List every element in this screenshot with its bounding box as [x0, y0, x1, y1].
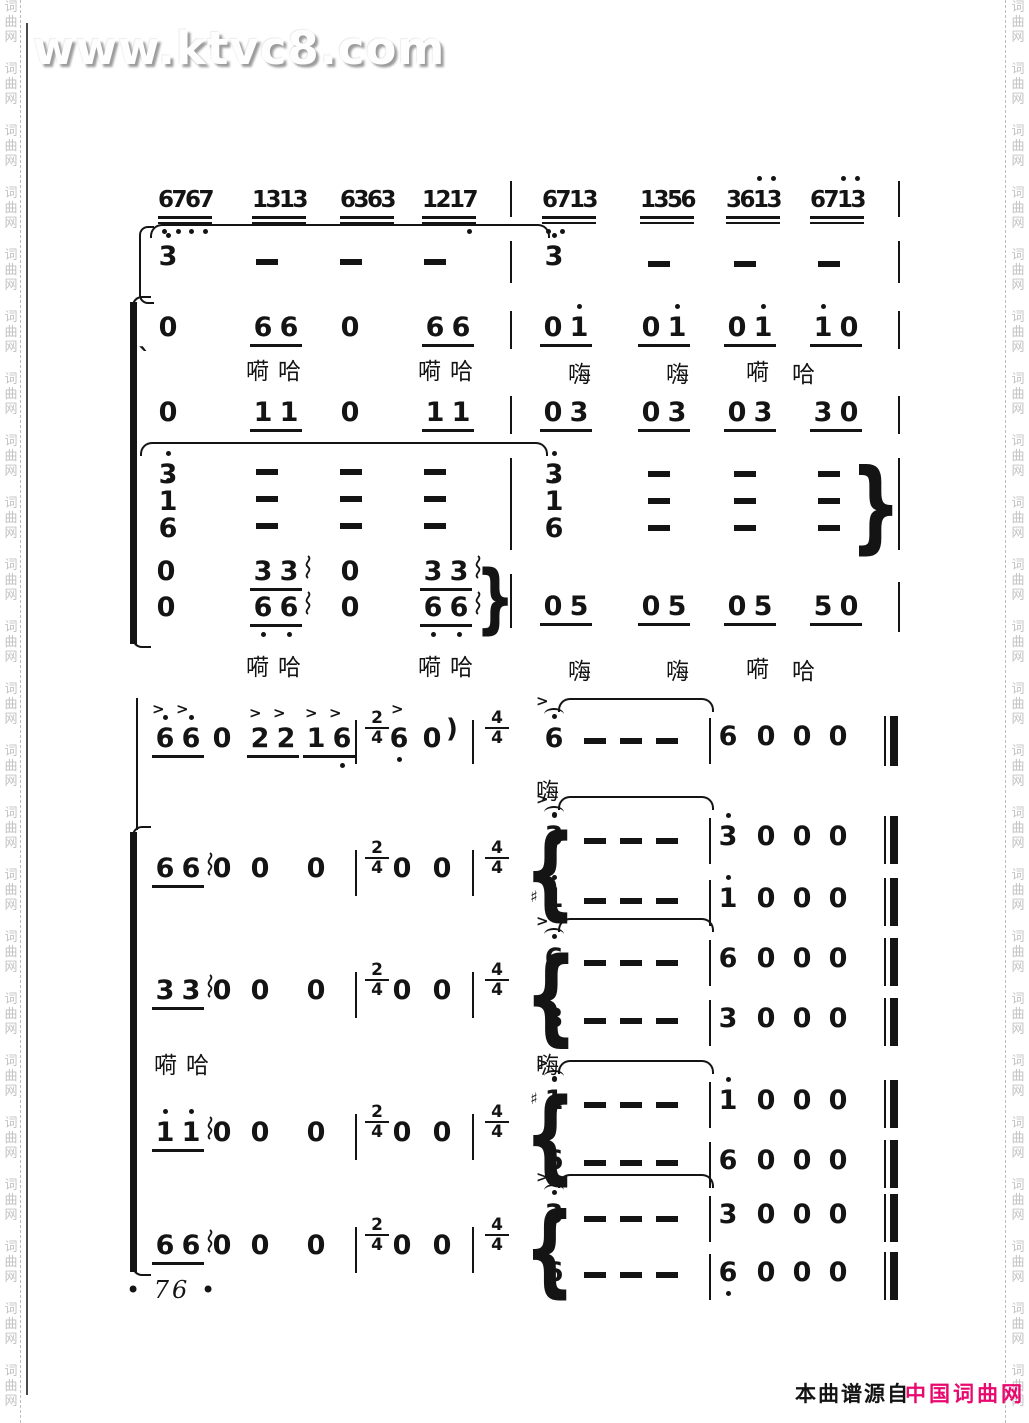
time-sig-numerator: 2: [363, 1217, 391, 1233]
sheet-music-page: 词曲网词曲网词曲网词曲网词曲网词曲网词曲网词曲网词曲网词曲网词曲网词曲网词曲网词…: [0, 0, 1029, 1423]
voice-brace: }: [850, 456, 901, 556]
time-sig-denominator: 4: [363, 730, 391, 746]
note-digit: 3: [446, 557, 472, 587]
note-digit: 5: [750, 592, 776, 622]
beam-underline: [542, 216, 596, 219]
sharp-sign: ♯: [530, 887, 538, 906]
margin-text-group: 词曲网: [2, 62, 20, 107]
jianpu-note: 0: [212, 976, 232, 1006]
beam-underline: [340, 216, 394, 219]
jianpu-note: 1: [718, 884, 738, 914]
note-digit: 0: [540, 313, 566, 343]
accent-mark: >: [305, 706, 318, 720]
beam-underline: [152, 1007, 204, 1010]
margin-text-group: 词曲网: [1009, 62, 1027, 107]
note-digit: 0: [724, 592, 750, 622]
sustain-dash: [648, 525, 670, 531]
time-signature: 24: [363, 840, 391, 876]
note-digit: 0: [756, 722, 776, 752]
jianpu-note: 0: [340, 398, 360, 428]
sustain-dash: [620, 1216, 642, 1222]
footer-brand-link[interactable]: 中国词曲网: [905, 1378, 1025, 1408]
note-digit: 6: [810, 185, 824, 215]
note-digit: 3: [250, 557, 276, 587]
beam-underline: [250, 344, 302, 347]
note-digit: 3: [178, 976, 204, 1006]
right-margin-watermark-text: 词曲网词曲网词曲网词曲网词曲网词曲网词曲网词曲网词曲网词曲网词曲网词曲网词曲网词…: [1009, 0, 1027, 1423]
lyric-syllable: 嗬哈: [154, 1046, 218, 1080]
margin-text-group: 词曲网: [2, 310, 20, 355]
jianpu-note: 0: [340, 557, 360, 587]
margin-text-group: 词曲网: [1009, 992, 1027, 1037]
note-digit: 0: [250, 1118, 270, 1148]
jianpu-note: 3: [158, 242, 178, 272]
jianpu-note: 0: [756, 722, 776, 752]
margin-text-group: 词曲网: [1009, 1240, 1027, 1285]
left-margin-dashed-line: [20, 0, 21, 1423]
note-digit: 3: [726, 185, 740, 215]
jianpu-note: 0: [306, 1231, 326, 1261]
note-digit: 6: [329, 724, 355, 754]
note-digit: 0: [836, 313, 862, 343]
note-digit: 0: [836, 592, 862, 622]
note-digit: 6: [158, 514, 178, 544]
barline: [898, 582, 900, 632]
accent-mark: >: [152, 702, 165, 716]
slur-hook: [132, 1262, 151, 1276]
margin-text-group: 词曲网: [1009, 620, 1027, 665]
margin-text-group: 词曲网: [2, 1054, 20, 1099]
jianpu-note: 0: [306, 1118, 326, 1148]
lyric-syllable: 嗨: [568, 652, 600, 686]
sustain-dash: [648, 471, 670, 477]
sustain-dash: [584, 1272, 606, 1278]
sustain-dash: [584, 1018, 606, 1024]
sustain-dash: [584, 838, 606, 844]
jianpu-note: 0: [422, 724, 442, 754]
beam-underline: [158, 216, 212, 219]
jianpu-note: 0: [156, 557, 176, 587]
note-digit: 0: [828, 1146, 848, 1176]
note-digit: 7: [199, 185, 213, 215]
system-bracket-line: [130, 832, 137, 1272]
jianpu-note: 6: [718, 1146, 738, 1176]
note-digit: 1: [279, 185, 293, 215]
jianpu-note: 0: [432, 976, 452, 1006]
note-digit: 3: [664, 398, 690, 428]
note-digit: 3: [152, 976, 178, 1006]
accent-mark: >: [329, 706, 342, 720]
slur-arc: [558, 1060, 714, 1074]
beam-underline: [422, 429, 474, 432]
accent-mark: >: [536, 1170, 549, 1184]
barline: [898, 458, 900, 550]
lyric-syllable: 嗬: [746, 650, 778, 684]
site-watermark: www.ktvc8.com: [33, 22, 445, 75]
note-digit: 0: [306, 1118, 326, 1148]
note-digit: 3: [544, 822, 564, 852]
page-number: • 76 •: [126, 1276, 218, 1304]
accent-mark: >: [391, 702, 404, 716]
note-digit: 3: [381, 185, 395, 215]
note-digit: 0: [340, 593, 360, 623]
final-bar-thin: [884, 1194, 886, 1242]
time-sig-denominator: 4: [363, 982, 391, 998]
margin-text-group: 词曲网: [2, 682, 20, 727]
sustain-dash: [620, 838, 642, 844]
slur-arc: [558, 918, 714, 932]
octave-dot-above: [189, 1109, 194, 1114]
margin-text-group: 词曲网: [1009, 124, 1027, 169]
beam-underline: [152, 1262, 204, 1265]
note-digit: 6: [718, 722, 738, 752]
note-digit: 0: [432, 1118, 452, 1148]
slur-hook: [132, 634, 151, 648]
jianpu-note: 6: [544, 724, 564, 754]
sustain-dash: [584, 960, 606, 966]
barline: [510, 396, 512, 434]
margin-text-group: 词曲网: [2, 248, 20, 293]
accent-mark: >: [536, 1056, 549, 1070]
beam-underline: [540, 344, 592, 347]
note-digit: 0: [306, 854, 326, 884]
beam-underline: [152, 885, 204, 888]
beam-underline: [540, 623, 592, 626]
sustain-dash: [620, 1160, 642, 1166]
note-digit: 7: [824, 185, 838, 215]
barline: [472, 720, 474, 764]
sustain-dash: [584, 1160, 606, 1166]
margin-text-group: 词曲网: [2, 992, 20, 1037]
margin-text-group: 词曲网: [2, 930, 20, 975]
jianpu-note: 11: [422, 398, 474, 428]
footer-source-label: 本曲谱源自: [795, 1378, 910, 1408]
beam-underline: [250, 588, 302, 591]
octave-dot-above: [821, 304, 826, 309]
note-digit: 6: [276, 593, 302, 623]
jianpu-note: 0: [756, 1146, 776, 1176]
sustain-dash: [818, 261, 840, 267]
jianpu-note: 05: [540, 592, 592, 622]
note-digit: 0: [638, 313, 664, 343]
jianpu-note: 3: [544, 822, 564, 852]
octave-dot-above: [552, 875, 557, 880]
octave-dot-below: [726, 1291, 731, 1296]
jianpu-note: 3613: [726, 185, 780, 215]
note-digit: 0: [156, 593, 176, 623]
jianpu-note: 0: [792, 1146, 812, 1176]
jianpu-note: 0: [250, 854, 270, 884]
sustain-dash: [620, 1018, 642, 1024]
jianpu-note: 6: [389, 724, 409, 754]
final-bar-thin: [884, 1080, 886, 1128]
slur-arc: [558, 796, 714, 810]
note-digit: 0: [756, 1086, 776, 1116]
time-signature: 24: [363, 1104, 391, 1140]
fermata-dot: [552, 1190, 557, 1195]
note-digit: 6: [340, 185, 354, 215]
octave-dot-above: [552, 233, 557, 238]
note-digit: 1: [303, 724, 329, 754]
time-sig-numerator: 2: [363, 710, 391, 726]
octave-dot-above: [726, 875, 731, 880]
accent-mark: >: [273, 706, 286, 720]
margin-text-group: 词曲网: [2, 620, 20, 665]
jianpu-note: 0: [212, 854, 232, 884]
octave-dot-above: [189, 715, 194, 720]
sustain-dash: [818, 525, 840, 531]
barline: [510, 574, 512, 628]
note-digit: 2: [273, 724, 299, 754]
note-digit: 1: [449, 185, 463, 215]
note-digit: 6: [178, 724, 204, 754]
barline: [472, 1114, 474, 1160]
note-digit: 1: [837, 185, 851, 215]
barline: [898, 241, 900, 283]
sustain-dash: [424, 496, 446, 502]
note-digit: 3: [544, 1200, 564, 1230]
note-digit: 3: [266, 185, 280, 215]
note-digit: 0: [792, 722, 812, 752]
note-digit: 3: [810, 398, 836, 428]
note-digit: 1: [664, 313, 690, 343]
jianpu-note: 0: [392, 1231, 412, 1261]
sustain-dash: [656, 1272, 678, 1278]
sustain-dash: [818, 471, 840, 477]
slur-arc: [150, 224, 550, 238]
time-sig-denominator: 4: [483, 860, 511, 876]
octave-dot-below: [287, 632, 292, 637]
final-bar-thin: [884, 878, 886, 926]
accent-mark: >: [536, 914, 549, 928]
note-digit: 6: [389, 724, 409, 754]
note-digit: 0: [792, 1086, 812, 1116]
jianpu-note: 0: [792, 722, 812, 752]
note-digit: 0: [638, 398, 664, 428]
margin-text-group: 词曲网: [1009, 186, 1027, 231]
octave-dot-below: [340, 763, 345, 768]
sustain-dash: [584, 1216, 606, 1222]
sustain-dash: [656, 1102, 678, 1108]
jianpu-note: 66: [250, 313, 302, 343]
jianpu-note: 03: [638, 398, 690, 428]
barline: [510, 181, 512, 217]
time-sig-numerator: 2: [363, 840, 391, 856]
sustain-dash: [656, 1160, 678, 1166]
octave-dot-above: [675, 304, 680, 309]
final-barline: [884, 1252, 898, 1300]
note-digit: 6: [152, 1231, 178, 1261]
note-digit: 6: [185, 185, 199, 215]
jianpu-note: 1313: [252, 185, 306, 215]
jianpu-note: 0: [792, 1086, 812, 1116]
note-digit: 0: [828, 1258, 848, 1288]
jianpu-note: 0: [828, 722, 848, 752]
jianpu-note: 0: [792, 1200, 812, 1230]
jianpu-note: 0: [756, 944, 776, 974]
beam-underline: [420, 588, 472, 591]
note-digit: 3: [544, 1004, 564, 1034]
time-sig-denominator: 4: [363, 1237, 391, 1253]
final-bar-thin: [884, 998, 886, 1046]
margin-text-group: 词曲网: [2, 1302, 20, 1347]
time-signature: 44: [483, 962, 511, 998]
jianpu-note: 66: [152, 1231, 204, 1261]
note-digit: 1: [750, 313, 776, 343]
final-bar-thick: [890, 878, 898, 926]
note-digit: 6: [740, 185, 754, 215]
barline: [709, 880, 711, 926]
jianpu-note: 3: [718, 1200, 738, 1230]
jianpu-note: 66: [152, 724, 204, 754]
note-digit: 0: [540, 592, 566, 622]
sustain-dash: [256, 496, 278, 502]
note-digit: 5: [566, 592, 592, 622]
jianpu-note: 0: [756, 1258, 776, 1288]
barline: [709, 818, 711, 864]
barline: [709, 940, 711, 986]
margin-text-group: 词曲网: [1009, 806, 1027, 851]
octave-dot-above: [771, 176, 776, 181]
time-sig-denominator: 4: [483, 730, 511, 746]
jianpu-note: 0: [340, 313, 360, 343]
jianpu-note: 3: [544, 1004, 564, 1034]
lyric-syllable: 嗬哈: [418, 352, 482, 386]
lyric-syllable: 哈: [792, 652, 824, 686]
margin-text-group: 词曲网: [2, 496, 20, 541]
jianpu-note: 6: [544, 1258, 564, 1288]
margin-text-group: 词曲网: [1009, 0, 1027, 45]
note-digit: 0: [756, 884, 776, 914]
beam-underline: [810, 623, 862, 626]
final-barline: [884, 938, 898, 986]
note-digit: 0: [756, 1258, 776, 1288]
sustain-dash: [424, 259, 446, 265]
jianpu-note: 0: [158, 313, 178, 343]
note-digit: 0: [792, 822, 812, 852]
jianpu-note: 6713: [542, 185, 596, 215]
jianpu-note: 3: [544, 242, 564, 272]
note-digit: 1: [718, 1086, 738, 1116]
barline: [355, 1114, 357, 1160]
note-digit: 0: [250, 976, 270, 1006]
note-digit: 1: [753, 185, 767, 215]
note-digit: 0: [212, 976, 232, 1006]
note-digit: 3: [654, 185, 668, 215]
note-digit: 0: [212, 854, 232, 884]
note-digit: 3: [767, 185, 781, 215]
jianpu-note: 6: [718, 722, 738, 752]
jianpu-note: 0: [340, 593, 360, 623]
sustain-dash: [648, 498, 670, 504]
note-digit: 1: [252, 185, 266, 215]
beam-underline: [724, 429, 776, 432]
jianpu-note: 0: [250, 1118, 270, 1148]
lyric-syllable: 嗨: [666, 652, 698, 686]
time-signature: 24: [363, 1217, 391, 1253]
octave-dot-above: [166, 233, 171, 238]
beam-underline: [726, 222, 780, 225]
beam-underline: [638, 623, 690, 626]
jianpu-note: 50: [810, 592, 862, 622]
octave-dot-below: [431, 632, 436, 637]
note-digit: 1: [276, 398, 302, 428]
jianpu-note: 66: [420, 593, 472, 623]
jianpu-note: 0: [432, 1118, 452, 1148]
jianpu-note: 0: [156, 593, 176, 623]
barline: [898, 181, 900, 217]
note-digit: 2: [247, 724, 273, 754]
fermata-dot: [552, 934, 557, 939]
time-sig-numerator: 4: [483, 840, 511, 856]
note-digit: 0: [638, 592, 664, 622]
jianpu-note: 11: [250, 398, 302, 428]
jianpu-note: 6: [718, 944, 738, 974]
note-digit: 5: [667, 185, 681, 215]
tremolo-wavy-mark: [303, 591, 314, 622]
jianpu-note: 0: [250, 1231, 270, 1261]
jianpu-note: 01: [638, 313, 690, 343]
final-bar-thick: [890, 716, 898, 766]
note-digit: 1: [544, 1086, 564, 1116]
note-digit: 0: [792, 1004, 812, 1034]
note-digit: 1: [152, 1118, 178, 1148]
beam-underline: [810, 429, 862, 432]
jianpu-note: 66: [250, 593, 302, 623]
final-barline: [884, 1194, 898, 1242]
note-digit: 6: [544, 1258, 564, 1288]
jianpu-note: 0: [792, 944, 812, 974]
note-digit: 1: [544, 884, 564, 914]
margin-text-group: 词曲网: [1009, 248, 1027, 293]
jianpu-note: 0: [392, 854, 412, 884]
jianpu-note: 0: [212, 1118, 232, 1148]
barline: [355, 1227, 357, 1273]
beam-underline: [726, 216, 780, 219]
jianpu-note: 33: [250, 557, 302, 587]
octave-dot-above: [761, 304, 766, 309]
final-bar-thick: [890, 1080, 898, 1128]
jianpu-note: 6767: [158, 185, 212, 215]
note-digit: 0: [212, 1118, 232, 1148]
notation-text-mark: ): [446, 716, 458, 742]
octave-dot-above: [841, 176, 846, 181]
margin-text-group: 词曲网: [1009, 1178, 1027, 1223]
note-digit: 0: [392, 1118, 412, 1148]
sustain-dash: [256, 469, 278, 475]
barline: [709, 1000, 711, 1046]
note-digit: 6: [250, 593, 276, 623]
barline: [898, 311, 900, 349]
sustain-dash: [340, 496, 362, 502]
time-sig-numerator: 4: [483, 1217, 511, 1233]
jianpu-note: 16: [303, 724, 355, 754]
note-digit: 1: [810, 313, 836, 343]
jianpu-note: 03: [540, 398, 592, 428]
time-sig-numerator: 4: [483, 962, 511, 978]
note-digit: 0: [156, 557, 176, 587]
margin-text-group: 词曲网: [1009, 744, 1027, 789]
time-sig-denominator: 4: [483, 982, 511, 998]
time-sig-numerator: 4: [483, 710, 511, 726]
beam-underline: [247, 755, 299, 758]
beam-underline: [810, 344, 862, 347]
sustain-dash: [656, 1018, 678, 1024]
accent-mark: >: [536, 792, 549, 806]
note-digit: 0: [340, 557, 360, 587]
note-digit: 6: [448, 313, 474, 343]
jianpu-note: 0: [792, 1004, 812, 1034]
